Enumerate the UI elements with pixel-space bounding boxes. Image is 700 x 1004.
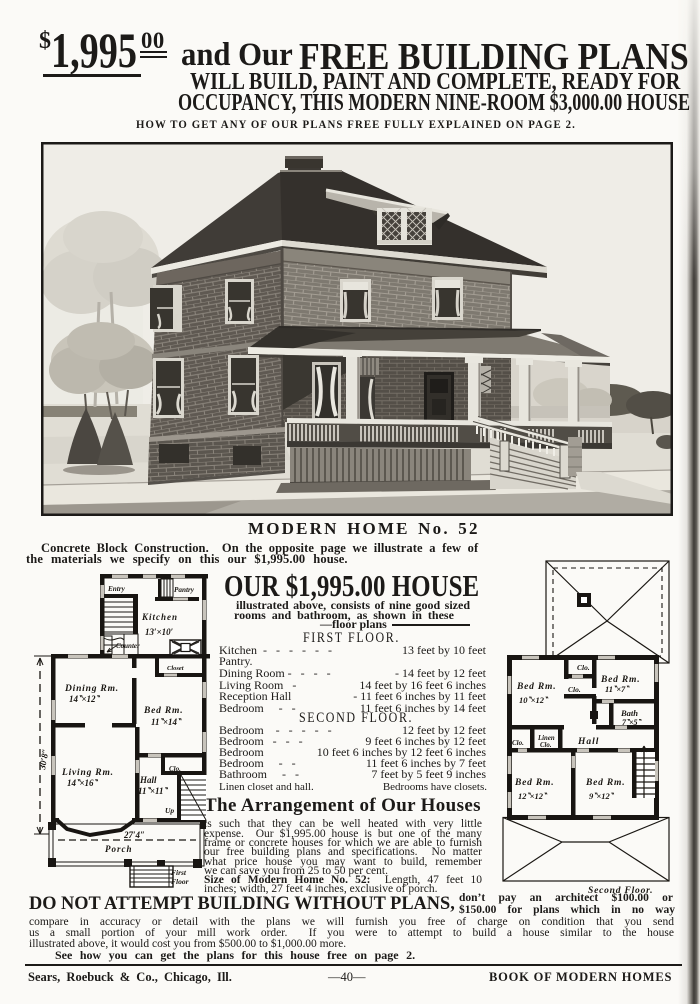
svg-text:11‶×14‶: 11‶×14‶ — [151, 717, 182, 727]
svg-text:12‶×12‶: 12‶×12‶ — [518, 791, 548, 801]
svg-text:Clo.: Clo. — [169, 765, 181, 773]
svg-text:Up: Up — [165, 806, 174, 815]
svg-text:Dining Rm.: Dining Rm. — [64, 684, 119, 694]
svg-text:Bath: Bath — [620, 708, 638, 718]
svg-text:Entry: Entry — [107, 585, 126, 593]
svg-text:Linen: Linen — [537, 735, 555, 742]
svg-text:9‶×12‶: 9‶×12‶ — [589, 791, 615, 801]
svg-text:Living Rm.: Living Rm. — [61, 768, 114, 778]
svg-text:30′8″: 30′8″ — [37, 748, 51, 771]
svg-text:Hall: Hall — [577, 737, 599, 747]
svg-text:Pantry: Pantry — [174, 586, 195, 594]
svg-text:Clo.: Clo. — [568, 685, 581, 694]
svg-text:14‶×16‶: 14‶×16‶ — [67, 778, 98, 788]
svg-text:Clo.: Clo. — [540, 742, 552, 749]
svg-text:Clo.: Clo. — [577, 663, 590, 672]
svg-text:10‶×12‶: 10‶×12‶ — [519, 695, 549, 705]
svg-text:Floor: Floor — [171, 877, 189, 886]
svg-text:11‶×11‶: 11‶×11‶ — [138, 786, 168, 796]
svg-text:Porch: Porch — [105, 844, 133, 854]
svg-text:11‶×7‶: 11‶×7‶ — [605, 684, 630, 694]
svg-text:First: First — [171, 868, 187, 877]
svg-text:Closet: Closet — [167, 665, 184, 672]
svg-text:27′4″: 27′4″ — [123, 830, 145, 840]
svg-text:Hall: Hall — [139, 775, 157, 785]
svg-text:Bed Rm.: Bed Rm. — [143, 706, 183, 716]
svg-text:Bed Rm.: Bed Rm. — [514, 778, 554, 788]
svg-text:Kitchen: Kitchen — [141, 612, 178, 622]
svg-text:14‶×12‶: 14‶×12‶ — [69, 694, 100, 704]
svg-text:13′×10′: 13′×10′ — [145, 627, 174, 637]
svg-text:7‶×5‶: 7‶×5‶ — [622, 718, 643, 727]
svg-text:Bed Rm.: Bed Rm. — [516, 682, 556, 692]
svg-text:Bed Rm.: Bed Rm. — [585, 778, 625, 788]
svg-text:Counter: Counter — [116, 642, 140, 650]
svg-text:Clo.: Clo. — [512, 739, 524, 747]
